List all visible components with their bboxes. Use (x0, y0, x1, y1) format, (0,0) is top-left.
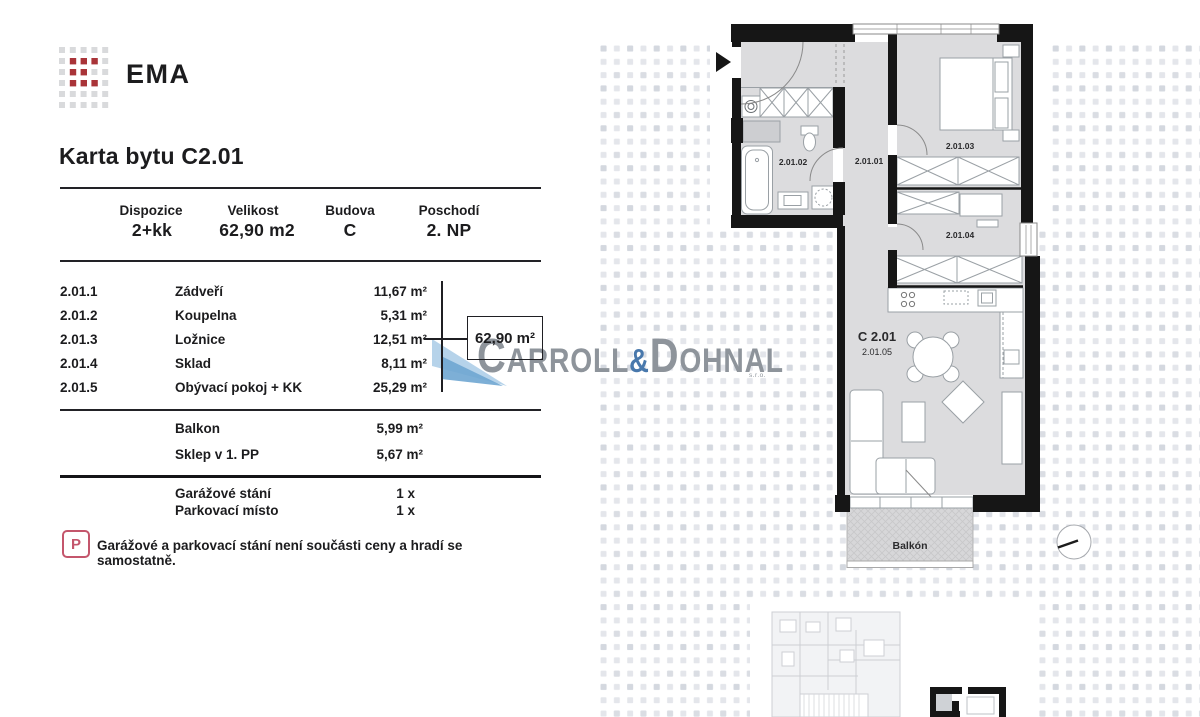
summary-header-dispozice: Dispozice (119, 203, 182, 218)
room-code: 2.01.5 (60, 380, 98, 395)
summary-value-velikost: 62,90 m2 (219, 220, 295, 241)
summary-value-poschodi: 2. NP (427, 220, 472, 241)
label-living-id: 2.01.05 (862, 347, 892, 357)
balcony (847, 497, 973, 568)
callout-bracket-vertical (441, 281, 443, 392)
parking-icon-letter: P (71, 536, 81, 553)
label-bathroom-id: 2.01.02 (779, 157, 808, 167)
coffee-table-icon (902, 402, 925, 442)
room-name: Obývací pokoj + KK (175, 380, 302, 395)
room-area: 12,51 m² (327, 332, 427, 347)
room-name: Koupelna (175, 308, 237, 323)
bed-icon (940, 45, 1019, 141)
room-name: Ložnice (175, 332, 225, 347)
bathroom-shelf (743, 121, 780, 142)
floorplan: 2.01.02 2.01.01 2.01.03 2.01.04 C 2.01 2… (545, 0, 1200, 717)
summary-header-poschodi: Poschodí (419, 203, 480, 218)
divider-top (60, 187, 541, 189)
label-storage-id: 2.01.04 (946, 230, 975, 240)
tv-bench-icon (1002, 392, 1022, 464)
room-area: 8,11 m² (327, 356, 427, 371)
shower-mat-icon (812, 186, 835, 209)
parking-note-text: Garážové a parkovací stání není součásti… (97, 538, 542, 568)
compass-icon (1057, 525, 1091, 559)
parking-name: Parkovací místo (175, 503, 279, 518)
parking-count: 1 x (335, 503, 415, 518)
bedroom-wardrobe (897, 157, 1019, 185)
label-hall-id: 2.01.01 (855, 156, 884, 166)
bathtub-icon (742, 146, 773, 214)
room-code: 2.01.4 (60, 356, 98, 371)
sink-icon (778, 192, 808, 209)
watermark-suffix: s.r.o. (749, 372, 766, 379)
brand-name: EMA (126, 59, 191, 90)
room-name: Sklad (175, 356, 211, 371)
room-code: 2.01.1 (60, 284, 98, 299)
parking-name: Garážové stání (175, 486, 271, 501)
divider-thick (60, 475, 541, 478)
apartment-card-page: 2.01.02 2.01.01 2.01.03 2.01.04 C 2.01 2… (0, 0, 1200, 717)
divider-under-rooms (60, 409, 541, 411)
room-name: Zádveří (175, 284, 223, 299)
room-area: 25,29 m² (327, 380, 427, 395)
summary-value-dispozice: 2+kk (132, 220, 172, 241)
summary-header-budova: Budova (325, 203, 375, 218)
divider-under-summary (60, 260, 541, 262)
overview-highlighted-unit (930, 687, 1006, 717)
page-title: Karta bytu C2.01 (59, 143, 244, 170)
dining-set-icon (907, 332, 959, 382)
label-bedroom-id: 2.01.03 (946, 141, 975, 151)
parking-count: 1 x (335, 486, 415, 501)
total-area-value: 62,90 m² (475, 330, 535, 347)
total-area-callout: 62,90 m² (467, 316, 543, 360)
room-area: 5,31 m² (327, 308, 427, 323)
parking-icon: P (62, 530, 90, 558)
label-balcony: Balkón (892, 540, 927, 552)
extra-area: 5,99 m² (323, 421, 423, 436)
room-code: 2.01.3 (60, 332, 98, 347)
label-unit: C 2.01 (858, 329, 896, 344)
extra-name: Balkon (175, 421, 220, 436)
room-area: 11,67 m² (327, 284, 427, 299)
callout-bracket-tick (424, 338, 467, 340)
room-code: 2.01.2 (60, 308, 98, 323)
ema-logo-icon (59, 47, 115, 113)
summary-value-budova: C (344, 220, 357, 241)
summary-header-velikost: Velikost (227, 203, 278, 218)
extra-area: 5,67 m² (323, 447, 423, 462)
extra-name: Sklep v 1. PP (175, 447, 259, 462)
